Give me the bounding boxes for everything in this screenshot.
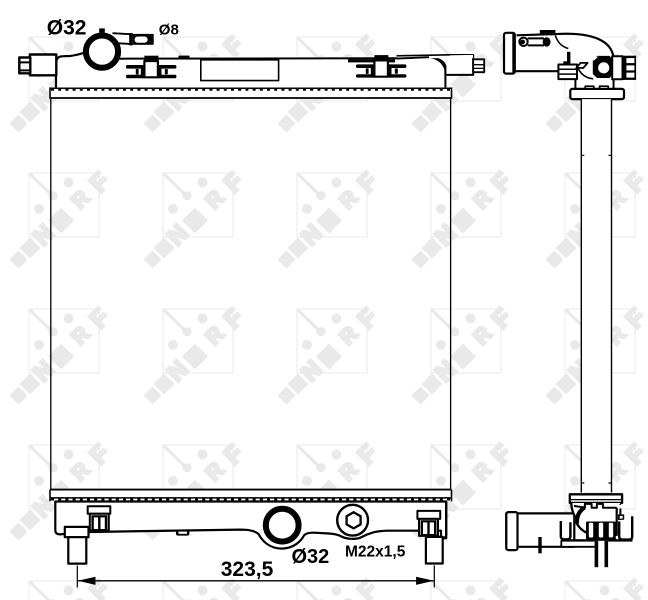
svg-text:M22x1,5: M22x1,5 bbox=[345, 544, 406, 561]
svg-text:Ø32: Ø32 bbox=[47, 17, 87, 40]
svg-text:Ø8: Ø8 bbox=[159, 21, 179, 38]
svg-text:Ø32: Ø32 bbox=[292, 546, 330, 568]
svg-text:323,5: 323,5 bbox=[221, 558, 274, 581]
